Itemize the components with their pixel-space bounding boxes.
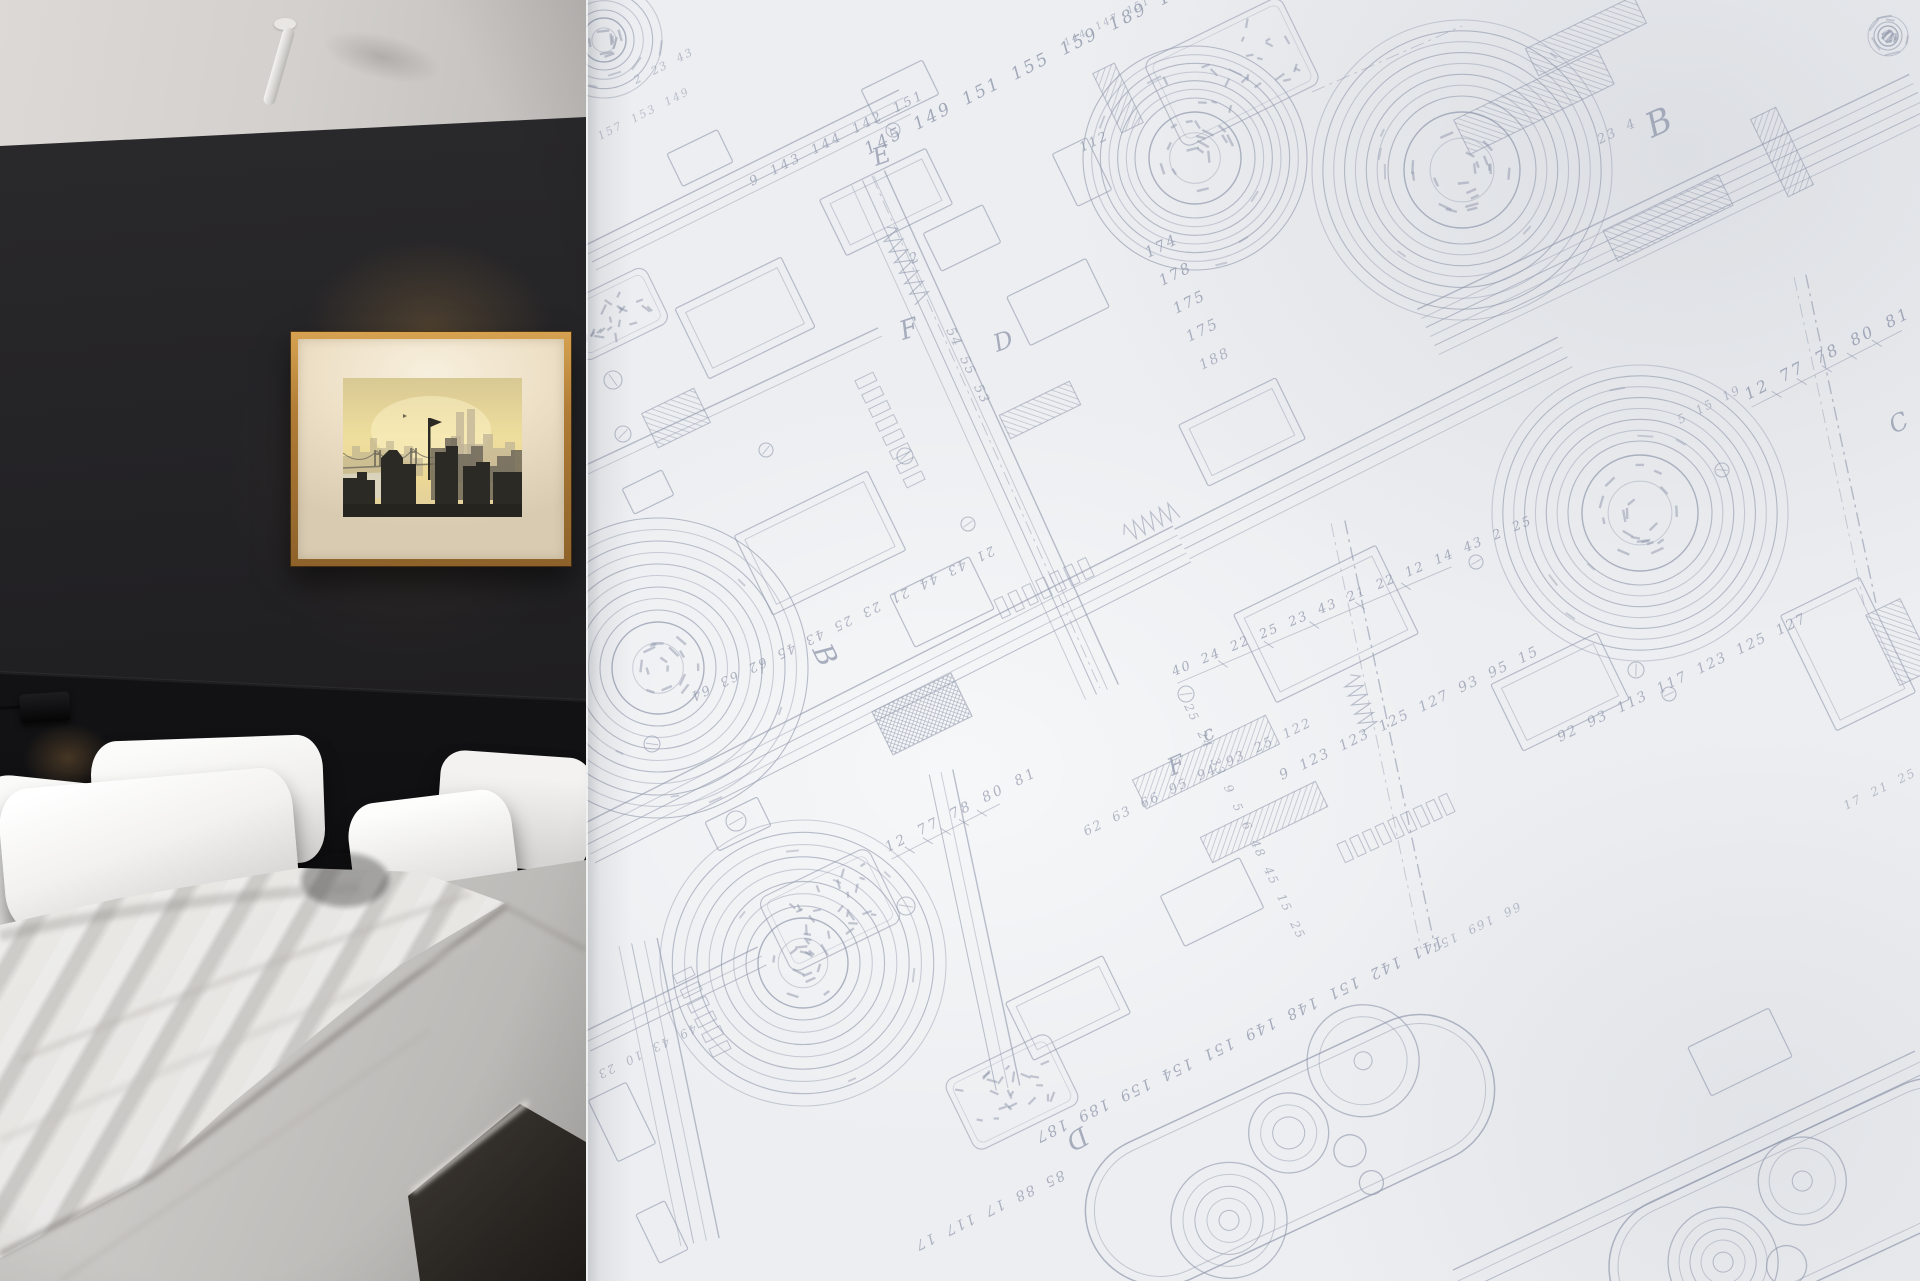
bed-creases <box>0 0 586 1281</box>
svg-text:D: D <box>989 324 1019 358</box>
svg-text:66 169 157: 66 169 157 <box>1428 899 1523 955</box>
svg-text:85 88 17 117 17: 85 88 17 117 17 <box>911 1166 1067 1253</box>
wall-edge-highlight <box>586 0 588 1281</box>
svg-text:F: F <box>895 312 924 347</box>
svg-text:54 55 53: 54 55 53 <box>942 325 992 407</box>
svg-text:141 142 151 148 149 151 154 15: 141 142 151 148 149 151 154 159 189 187 <box>1032 932 1446 1146</box>
svg-text:12 77 78 80 81 82: 12 77 78 80 81 82 <box>1741 285 1920 403</box>
svg-text:174: 174 <box>1142 230 1181 261</box>
svg-text:175: 175 <box>1183 314 1222 345</box>
blueprint-pattern: 9 143 144 142 151145 149 151 155 159 189… <box>586 0 1920 1281</box>
svg-text:40 24 22 25 23 43 21 22 12 14: 40 24 22 25 23 43 21 22 12 14 43 2 25 <box>1169 513 1535 680</box>
svg-text:12 77 78 80 81: 12 77 78 80 81 <box>883 765 1041 856</box>
svg-text:178: 178 <box>1156 258 1195 289</box>
svg-text:23 4: 23 4 <box>1594 116 1639 148</box>
svg-text:B: B <box>1638 99 1680 147</box>
svg-text:2 23 43: 2 23 43 <box>631 45 697 87</box>
hotel-bedroom-photo: 9 143 144 142 151145 149 151 155 159 189… <box>0 0 1920 1281</box>
wall-edge-shadow <box>586 0 632 1281</box>
svg-text:175: 175 <box>1170 286 1209 317</box>
svg-text:145 149 151 155 159 189 187 17: 145 149 151 155 159 189 187 175 <box>861 0 1249 159</box>
svg-text:9 123 123 125 127 93 95 15: 9 123 123 125 127 93 95 15 <box>1277 643 1542 783</box>
svg-text:C: C <box>1884 405 1915 439</box>
svg-text:17 21 25: 17 21 25 <box>1841 765 1919 812</box>
blueprint-wall: 9 143 144 142 151145 149 151 155 159 189… <box>586 0 1920 1281</box>
bedroom-interior <box>0 0 586 1281</box>
svg-text:188: 188 <box>1197 345 1233 374</box>
